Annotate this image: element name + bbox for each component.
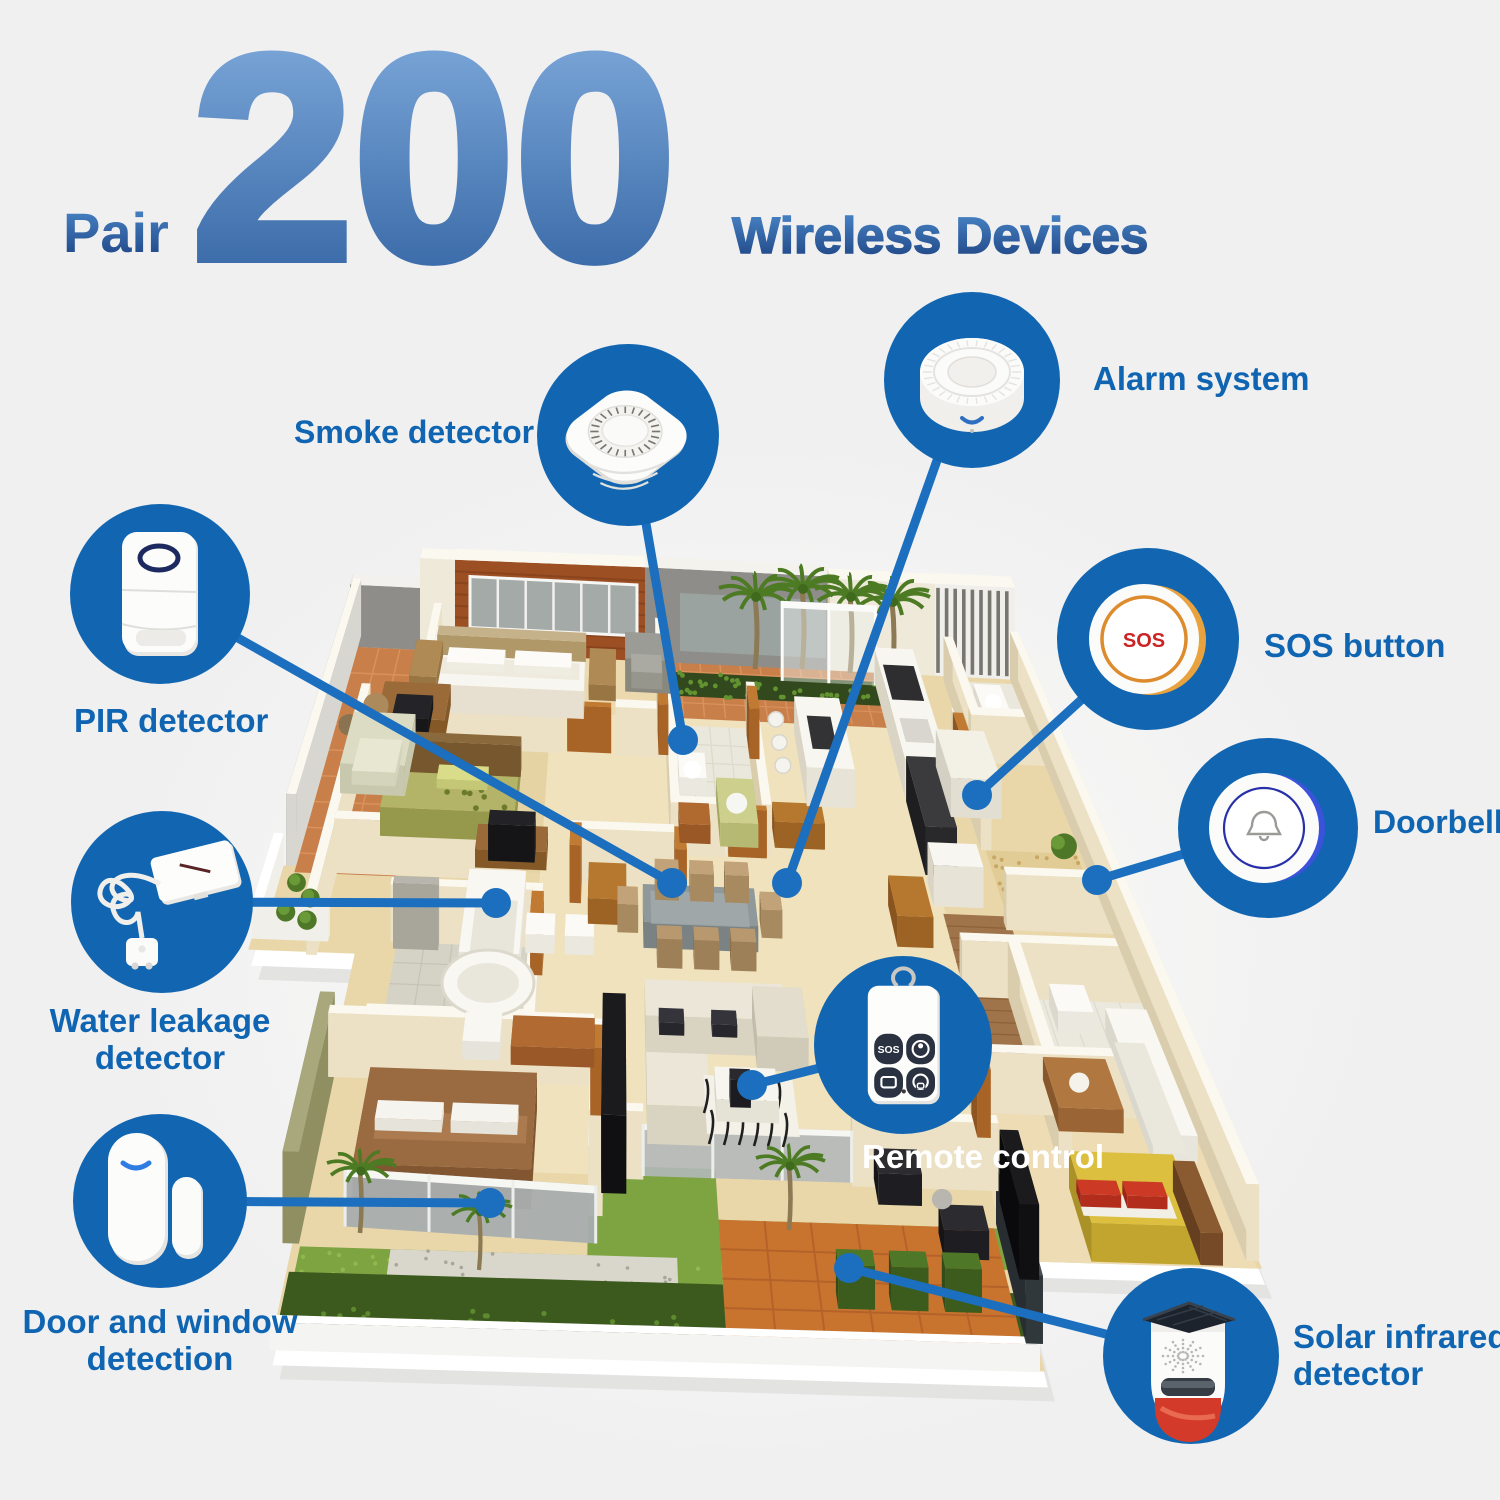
svg-text:Wireless Devices: Wireless Devices [732,207,1148,264]
svg-text:Remote control: Remote control [862,1138,1104,1175]
svg-text:detection: detection [87,1340,234,1377]
svg-text:Smoke detector: Smoke detector [294,414,534,450]
svg-text:Door and window: Door and window [23,1303,298,1340]
svg-text:Water leakage: Water leakage [50,1002,271,1039]
svg-text:Pair: Pair [63,201,169,264]
svg-text:Alarm system: Alarm system [1093,360,1309,397]
svg-text:SOS: SOS [1123,630,1165,652]
svg-text:detector: detector [1293,1355,1423,1392]
svg-text:200: 200 [192,0,676,320]
svg-text:SOS button: SOS button [1264,627,1445,664]
svg-text:Doorbell: Doorbell [1373,804,1500,840]
svg-text:PIR detector: PIR detector [74,702,269,739]
svg-text:detector: detector [95,1039,225,1076]
svg-text:SOS: SOS [878,1045,900,1056]
svg-text:Solar infrared: Solar infrared [1293,1318,1500,1355]
